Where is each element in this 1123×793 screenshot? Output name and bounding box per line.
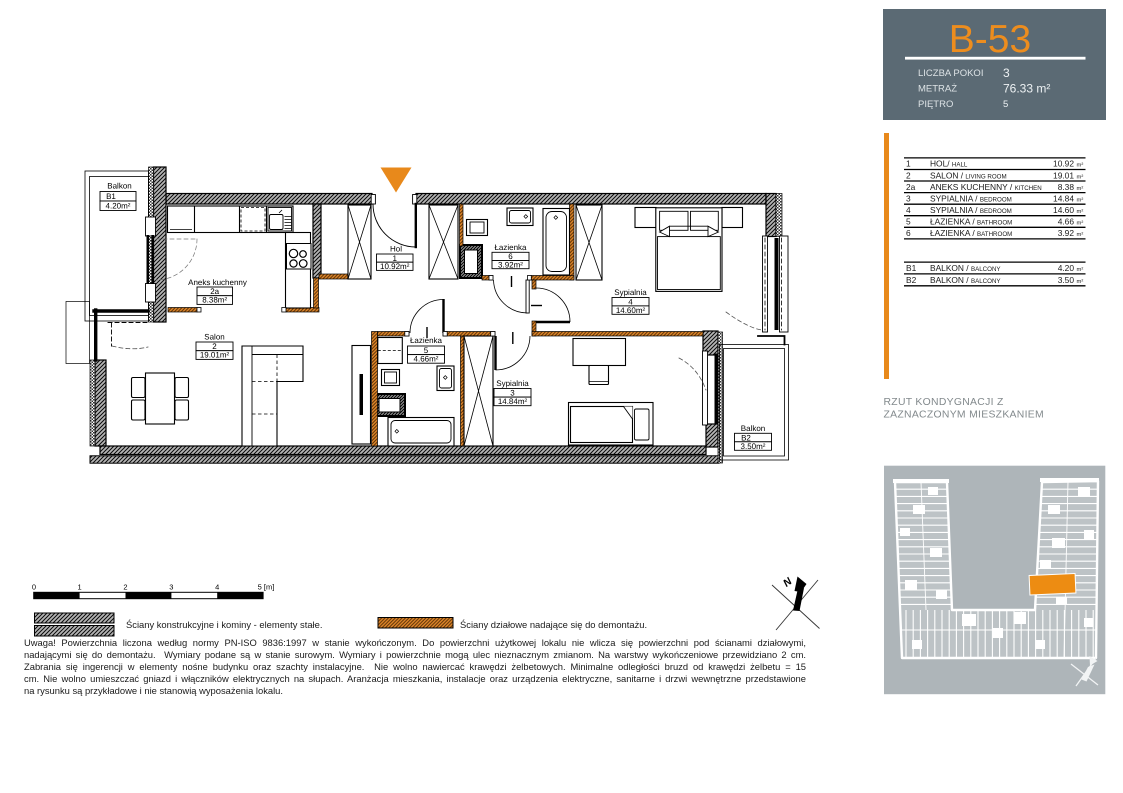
svg-text:14.84: 14.84: [1053, 194, 1074, 204]
svg-text:m²: m²: [1077, 198, 1084, 204]
svg-text:ŁAZIENKA / BATHROOM: ŁAZIENKA / BATHROOM: [930, 217, 1012, 227]
svg-text:5 [m]: 5 [m]: [258, 583, 275, 592]
svg-text:m²: m²: [1077, 221, 1084, 227]
svg-text:3: 3: [169, 583, 173, 592]
svg-text:Sypialnia: Sypialnia: [614, 288, 647, 297]
svg-text:5: 5: [1003, 99, 1008, 110]
svg-text:3: 3: [906, 194, 911, 204]
svg-text:19.01m²: 19.01m²: [200, 351, 230, 360]
svg-text:m²: m²: [1077, 174, 1084, 180]
svg-text:8.38: 8.38: [1058, 182, 1075, 192]
svg-text:B2: B2: [906, 275, 917, 285]
svg-text:Ściany konstrukcyjne i kominy: Ściany konstrukcyjne i kominy - elementy…: [126, 619, 322, 630]
svg-text:4.66: 4.66: [1058, 217, 1075, 227]
svg-text:3.50: 3.50: [1058, 275, 1075, 285]
svg-text:ZAZNACZONYM MIESZKANIEM: ZAZNACZONYM MIESZKANIEM: [884, 410, 1044, 421]
svg-text:3.92m²: 3.92m²: [498, 261, 523, 270]
svg-text:4: 4: [906, 205, 911, 215]
svg-text:4.66m²: 4.66m²: [414, 355, 439, 364]
svg-text:2: 2: [123, 583, 127, 592]
svg-text:m²: m²: [1077, 267, 1084, 273]
svg-text:Sypialnia: Sypialnia: [496, 379, 529, 388]
svg-text:Łazienka: Łazienka: [494, 243, 527, 252]
svg-text:19.01: 19.01: [1053, 170, 1074, 180]
svg-text:2: 2: [906, 170, 911, 180]
svg-text:LICZBA POKOI: LICZBA POKOI: [918, 68, 983, 79]
svg-text:14.60: 14.60: [1053, 205, 1074, 215]
svg-text:BALKON / BALCONY: BALKON / BALCONY: [930, 263, 1001, 273]
svg-text:2: 2: [212, 342, 217, 351]
svg-text:ŁAZIENKA / BATHROOM: ŁAZIENKA / BATHROOM: [930, 228, 1012, 238]
svg-text:5: 5: [906, 217, 911, 227]
svg-text:3.50m²: 3.50m²: [741, 442, 766, 451]
svg-text:14.60m²: 14.60m²: [616, 306, 646, 315]
svg-text:m²: m²: [1077, 186, 1084, 192]
svg-text:4: 4: [215, 583, 219, 592]
svg-text:Hol: Hol: [390, 245, 402, 254]
svg-text:14.84m²: 14.84m²: [498, 397, 528, 406]
svg-text:RZUT KONDYGNACJI Z: RZUT KONDYGNACJI Z: [884, 397, 1004, 408]
svg-text:76.33 m²: 76.33 m²: [1003, 82, 1050, 96]
svg-text:B1: B1: [106, 192, 116, 201]
svg-text:N: N: [781, 575, 795, 589]
svg-text:0: 0: [32, 583, 36, 592]
svg-text:m²: m²: [1077, 232, 1084, 238]
svg-text:3: 3: [1003, 66, 1010, 80]
svg-text:8.38m²: 8.38m²: [202, 296, 227, 305]
svg-text:3.92: 3.92: [1058, 228, 1075, 238]
svg-text:SYPIALNIA / BEDROOM: SYPIALNIA / BEDROOM: [930, 194, 1012, 204]
svg-text:METRAŻ: METRAŻ: [918, 84, 957, 95]
svg-text:B-53: B-53: [949, 18, 1031, 61]
svg-text:1: 1: [78, 583, 82, 592]
svg-text:ANEKS KUCHENNY / KITCHEN: ANEKS KUCHENNY / KITCHEN: [930, 182, 1042, 192]
svg-text:SALON / LIVING ROOM: SALON / LIVING ROOM: [930, 170, 1007, 180]
svg-text:Aneks kuchenny: Aneks kuchenny: [188, 278, 247, 287]
svg-text:Salon: Salon: [204, 333, 224, 342]
svg-text:4.20m²: 4.20m²: [106, 202, 131, 211]
svg-text:1: 1: [906, 159, 911, 169]
svg-text:2a: 2a: [210, 287, 219, 296]
svg-text:Łazienka: Łazienka: [410, 336, 443, 345]
svg-text:Ściany działowe nadające się d: Ściany działowe nadające się do demontaż…: [460, 619, 647, 630]
svg-text:m²: m²: [1077, 279, 1084, 285]
svg-text:BALKON / BALCONY: BALKON / BALCONY: [930, 275, 1001, 285]
svg-text:SYPIALNIA / BEDROOM: SYPIALNIA / BEDROOM: [930, 205, 1012, 215]
svg-text:4.20: 4.20: [1058, 263, 1075, 273]
svg-text:Balkon: Balkon: [741, 424, 765, 433]
svg-text:10.92: 10.92: [1053, 159, 1074, 169]
svg-text:2a: 2a: [906, 182, 916, 192]
svg-text:6: 6: [906, 228, 911, 238]
svg-text:Balkon: Balkon: [107, 182, 131, 191]
svg-text:HOL/ HALL: HOL/ HALL: [930, 159, 968, 169]
svg-text:B1: B1: [906, 263, 917, 273]
svg-text:m²: m²: [1077, 163, 1084, 169]
svg-text:10.92m²: 10.92m²: [380, 262, 410, 271]
svg-text:m²: m²: [1077, 209, 1084, 215]
svg-text:PIĘTRO: PIĘTRO: [918, 99, 953, 110]
